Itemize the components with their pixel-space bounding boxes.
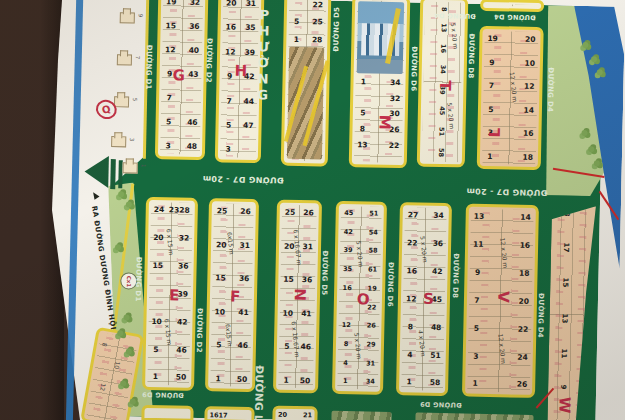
lot-number-row: 1536	[213, 274, 251, 282]
street-label-d7-left: ĐƯỜNG D7 - 20m	[202, 174, 283, 184]
house-footprint: 7	[117, 54, 132, 65]
lot-number-row: 2031	[224, 0, 258, 8]
block-f: 2526203115361041546150 F 6x15 m 6x15 m	[205, 198, 259, 392]
lot-number: 13	[560, 313, 569, 339]
lot-number-row: 1642	[404, 267, 444, 275]
photo-inset-aerial	[287, 47, 324, 160]
lot-number-row: 348	[161, 143, 199, 151]
block-bottom-cut: 2021	[272, 406, 317, 420]
lot-number-row: 1322	[355, 141, 401, 149]
lot-number-row: 744	[222, 97, 256, 105]
lot-number-row: 1239	[223, 48, 257, 56]
block-letter-v: V	[495, 291, 510, 303]
lot-number-row: 525	[290, 18, 325, 26]
block-letter-s: S	[423, 292, 434, 307]
street-label-lien-phuong-top: PHƯỜNG	[256, 7, 271, 103]
block-letter-h: H	[235, 64, 248, 79]
tree-icon	[588, 146, 594, 152]
tree-icon	[123, 314, 129, 320]
lot-number-row: 242328	[152, 206, 192, 214]
house-footprint: 3	[111, 136, 126, 147]
block-n: 2526203115361041546150 N 6 x 16.67 m 6 x…	[273, 200, 322, 394]
block-e: 24232820321536391042546150 E 6 x 15 m 6 …	[142, 197, 198, 391]
tree-icon	[582, 42, 588, 48]
lot-number-row: 22	[290, 1, 325, 9]
block-letter-w: W	[556, 397, 571, 414]
lot-number-row: 2734	[406, 211, 446, 219]
block-s: 2734223616421245848451158 S 5 x 20 m 4 x…	[396, 202, 452, 396]
exit-arrow-icon	[84, 156, 109, 188]
lot-number-row: 32	[356, 94, 402, 102]
lot-number-row: 431	[339, 360, 378, 367]
tree-icon	[118, 191, 124, 197]
tree-icon	[597, 69, 603, 75]
lot-number-row: 918	[470, 268, 531, 277]
block-sliver-top	[480, 0, 544, 12]
lot-number: 34	[439, 65, 447, 74]
lot-number-row: 134	[338, 378, 377, 385]
lot-number: 13	[440, 23, 448, 32]
street-label-d5-bottom: ĐƯỜNG D5	[320, 250, 328, 295]
block-letter-g: G	[172, 68, 185, 83]
street-label-d5-top: ĐƯỜNG D5	[333, 7, 341, 52]
lot-number-row: 1536	[151, 262, 191, 270]
street-label-d1-bottom: ĐƯỜNG D1	[134, 257, 142, 302]
street-label-d1-top: ĐƯỜNG D1	[144, 45, 152, 90]
lot-number: 45	[438, 106, 446, 115]
lot-number-row: 1536	[164, 22, 202, 30]
lot-number-row: 4254	[341, 229, 380, 236]
tree-icon	[594, 160, 600, 166]
lot-number-row: 126	[468, 380, 529, 389]
lot-number-row: 150	[279, 376, 312, 384]
lot-number-row: 128	[289, 35, 324, 43]
plot-dim: 5 x 20 m	[446, 102, 456, 129]
lot-number-row: 1536	[281, 276, 314, 284]
block-letter-n: N	[292, 288, 307, 301]
lot-number-row: 522	[469, 324, 530, 333]
photo-inset-buildings	[357, 1, 404, 74]
block-letter-l: L	[488, 128, 503, 138]
lot-number-row: 546	[162, 119, 200, 127]
lot-number-row: 2526	[215, 207, 253, 215]
block-t: 813163439455158 T 5 x 20 m 5 x 20 m	[417, 0, 469, 167]
block-letter-t: T	[437, 80, 452, 91]
block-bottom-cut	[141, 405, 193, 420]
block-l: 1920910712514316118 L 12 x 20 m	[477, 26, 544, 170]
lot-number-row: 547	[221, 121, 255, 129]
street-label-d4-bottom: ĐƯỜNG D4	[536, 293, 544, 338]
exit-arrow-bar	[110, 159, 116, 189]
street-label-d7-right: ĐƯỜNG D7 - 20m	[466, 187, 547, 197]
block-letter-o: O	[357, 292, 370, 307]
lot-number-row: 158	[402, 379, 442, 387]
block-g: 1932153612409437546348 G	[155, 0, 209, 160]
lot-number-row: 2526	[283, 209, 316, 217]
lot-number: 11	[559, 349, 568, 375]
lot-number-row: 1635	[224, 24, 258, 32]
block-v: 13141116918720522324126 V 12 x 20 m 12 x…	[462, 204, 539, 398]
lot-number-row: 910	[485, 58, 537, 67]
photo-inset-bottom	[331, 411, 391, 420]
photo-inset-bottom	[415, 413, 533, 420]
block-photo: 22525128	[281, 0, 332, 167]
lot-number-row: 150	[148, 373, 188, 381]
lot-number-row: 1314	[472, 213, 533, 222]
tree-icon	[120, 380, 126, 386]
street-label-d6-top: ĐƯỜNG D6	[409, 46, 417, 91]
lot-number-row: 546	[149, 345, 189, 353]
lot-number-row: 1041	[281, 309, 314, 317]
tree-icon	[126, 201, 132, 207]
block-letter-e: E	[169, 288, 180, 303]
street-label-d4-top: ĐƯỜNG D4	[494, 13, 536, 20]
map-photo: RA ĐƯỜNG DƯƠNG ĐÌNH HỘI Cx1 9 7 5 3 1 Q …	[0, 0, 625, 420]
street-label-d4-top: ĐƯỜNG D4	[434, 12, 476, 19]
lot-number-row: 3	[221, 146, 255, 154]
house-footprint: 9	[120, 12, 135, 23]
tree-icon	[581, 130, 587, 136]
lot-number: 16	[439, 44, 447, 53]
lot-number: 15	[561, 278, 570, 304]
street-label-d2-bottom: ĐƯỜNG D2	[195, 308, 203, 353]
lot-number: 51	[437, 127, 445, 136]
tree-icon	[115, 244, 121, 250]
lot-number: 58	[437, 148, 445, 157]
lot-number-row: 1226	[339, 322, 378, 329]
street-label-d6-bottom: ĐƯỜNG D6	[386, 262, 394, 307]
lot-number-row: 150	[211, 375, 249, 383]
block-letter-f: F	[230, 290, 241, 305]
lot-number-row: 1932	[164, 0, 202, 6]
street-label-d8-bottom: ĐƯỜNG D8	[451, 253, 459, 298]
street-label-d9-left: ĐƯỜNG D9	[142, 391, 184, 398]
tree-icon	[130, 399, 136, 405]
street-label-d2-top: ĐƯỜNG D2	[204, 38, 212, 83]
plot-dim: 5 x 20 m	[450, 22, 460, 49]
lot-number-row: 134	[356, 78, 402, 86]
lot-number-row: 118	[483, 152, 535, 161]
block-m: 134325308261322 M	[349, 0, 411, 168]
block-bottom-cut: 1617	[204, 406, 254, 420]
street-label-d9-right: ĐƯỜNG D9	[420, 401, 462, 408]
lot-number-row: 1240	[163, 46, 201, 54]
street-label-d8-top: ĐƯỜNG D8	[467, 34, 475, 79]
lot-number-row: 1041	[213, 308, 251, 316]
lot-number-row: 514	[484, 105, 536, 114]
lot-number-row: 7	[162, 94, 200, 102]
lot-number-row: 1920	[485, 35, 537, 44]
block-letter-m: M	[376, 115, 391, 130]
lot-number-row: 4551	[342, 210, 381, 217]
tree-icon	[126, 348, 132, 354]
lot-number: 17	[562, 242, 571, 268]
tree-icon	[591, 56, 597, 62]
house-footprint: 1	[123, 162, 138, 173]
map-print: RA ĐƯỜNG DƯƠNG ĐÌNH HỘI Cx1 9 7 5 3 1 Q …	[0, 0, 625, 420]
street-label-lien-phuong-bottom: ĐƯỜNG LIÊ	[253, 365, 265, 420]
street-label-d4-right: ĐƯỜNG D4	[546, 67, 554, 112]
block-o: 45514254395835611619221226829431134 O 5 …	[332, 201, 387, 395]
